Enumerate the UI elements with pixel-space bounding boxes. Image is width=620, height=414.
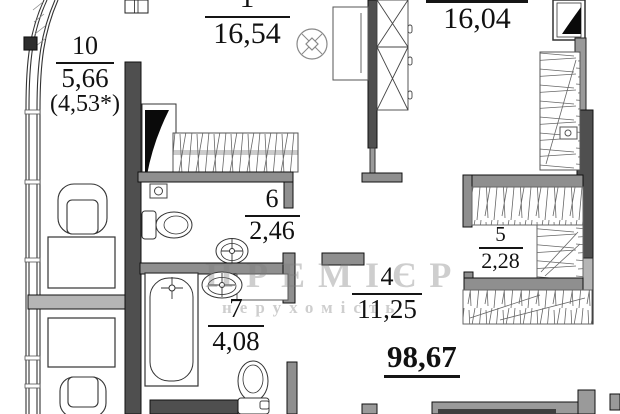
floorplan: ПРЕМІЄР нерухомість 1 16,54 16,04 10 5,6…	[0, 0, 620, 414]
wall	[362, 173, 402, 182]
wall	[368, 0, 377, 148]
room-area: 2,28	[477, 250, 524, 272]
room-6-label: 6 2,46	[243, 186, 301, 244]
room-area: 4,08	[207, 328, 265, 356]
room-area: 16,54	[193, 19, 301, 50]
room-number: 1	[193, 0, 301, 14]
armchair	[60, 377, 106, 414]
balcony-divider-wall	[28, 295, 125, 309]
room-number: 7	[207, 295, 265, 323]
total-area-label: 98,67	[384, 341, 460, 378]
window	[553, 0, 585, 40]
floor-drain	[150, 184, 167, 198]
door-swing	[142, 104, 176, 181]
wardrobe-x	[377, 0, 412, 110]
room-number: 10	[44, 33, 126, 60]
balcony-table	[48, 318, 115, 367]
toilet	[142, 211, 192, 239]
kitchen-counter	[173, 133, 298, 172]
watermark-line1: ПРЕМІЄР	[205, 254, 464, 296]
wall	[150, 400, 238, 414]
room-number: 6	[243, 186, 301, 213]
kitchen-cabinet	[333, 7, 368, 80]
room-2-label: 16,04	[424, 0, 530, 35]
wall	[370, 148, 375, 174]
toilet	[238, 361, 269, 414]
glazing-mullion	[25, 110, 40, 388]
room-1-label: 1 16,54	[193, 0, 301, 49]
room-number: 4	[350, 264, 424, 291]
wardrobe	[540, 52, 580, 170]
bathtub	[145, 273, 198, 386]
room-7-label: 7 4,08	[207, 295, 265, 355]
wall	[287, 362, 297, 414]
wall-column	[125, 0, 148, 13]
armchair	[58, 184, 107, 234]
wall	[362, 390, 620, 414]
room-4-label: 4 11,25	[350, 264, 424, 323]
wall	[138, 172, 293, 182]
room-area: 16,04	[424, 4, 530, 35]
stove-icon	[297, 29, 327, 59]
room-area: 5,66	[44, 65, 126, 93]
room-area-note: (4,53*)	[44, 92, 126, 116]
room-number: 5	[477, 224, 524, 245]
room-area: 11,25	[350, 296, 424, 324]
room-10-label: 10 5,66 (4,53*)	[44, 33, 126, 117]
room-area: 2,46	[243, 218, 301, 245]
room-5-label: 5 2,28	[477, 224, 524, 273]
wall	[125, 62, 141, 414]
balcony-table	[48, 237, 115, 288]
